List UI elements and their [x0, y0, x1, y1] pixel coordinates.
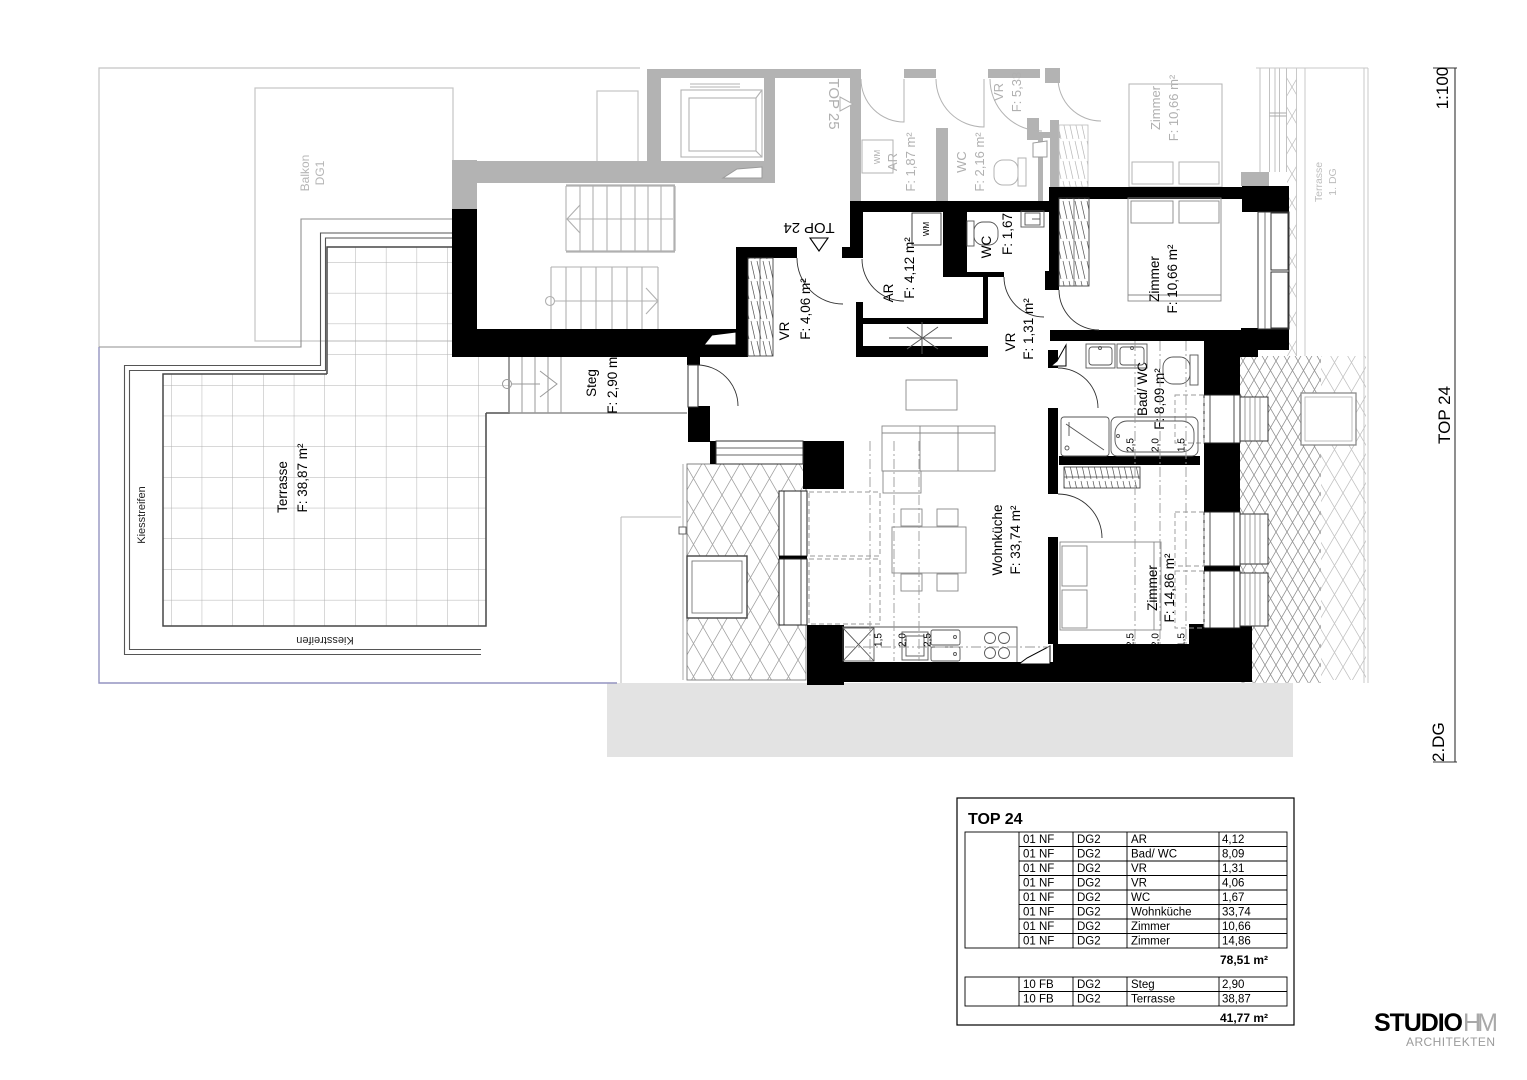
svg-text:F: 2,16 m²: F: 2,16 m² — [972, 132, 987, 192]
svg-text:F: 33,74 m²: F: 33,74 m² — [1008, 505, 1023, 575]
svg-text:AR: AR — [1131, 834, 1147, 846]
svg-text:10 FB: 10 FB — [1023, 979, 1054, 991]
svg-text:1,31: 1,31 — [1222, 863, 1244, 875]
svg-text:Zimmer: Zimmer — [1145, 565, 1160, 611]
svg-text:WC: WC — [1131, 892, 1150, 904]
svg-text:F: 8,09 m²: F: 8,09 m² — [1152, 368, 1167, 430]
svg-text:Zimmer: Zimmer — [1148, 85, 1163, 130]
svg-text:VR: VR — [777, 321, 792, 340]
svg-text:F: 2,90 m²: F: 2,90 m² — [605, 352, 620, 414]
svg-text:01 NF: 01 NF — [1023, 936, 1054, 948]
svg-text:38,87: 38,87 — [1222, 994, 1251, 1006]
svg-text:AR: AR — [881, 283, 896, 302]
svg-text:TOP 24: TOP 24 — [968, 811, 1023, 828]
svg-text:DG2: DG2 — [1077, 994, 1101, 1006]
svg-text:WM: WM — [873, 150, 882, 165]
svg-text:DG1: DG1 — [313, 160, 327, 185]
svg-text:10,66: 10,66 — [1222, 921, 1251, 933]
svg-text:2,0: 2,0 — [898, 633, 909, 647]
svg-text:1,67: 1,67 — [1222, 892, 1244, 904]
svg-text:01 NF: 01 NF — [1023, 878, 1054, 890]
svg-text:F: 38,87 m²: F: 38,87 m² — [295, 443, 310, 513]
svg-text:VR: VR — [991, 83, 1006, 101]
svg-text:8,09: 8,09 — [1222, 849, 1244, 861]
svg-text:DG2: DG2 — [1077, 979, 1101, 991]
svg-text:Terrasse: Terrasse — [275, 461, 290, 513]
svg-text:Wohnküche: Wohnküche — [990, 504, 1005, 575]
svg-text:01 NF: 01 NF — [1023, 907, 1054, 919]
svg-text:4,06: 4,06 — [1222, 878, 1244, 890]
svg-text:33,74: 33,74 — [1222, 907, 1251, 919]
svg-text:TOP 25: TOP 25 — [825, 78, 842, 129]
svg-text:DG2: DG2 — [1077, 921, 1101, 933]
svg-text:F: 1,67: F: 1,67 — [1000, 213, 1015, 255]
svg-text:2,90: 2,90 — [1222, 979, 1244, 991]
svg-text:41,77 m²: 41,77 m² — [1220, 1011, 1268, 1025]
svg-text:Balkon: Balkon — [298, 155, 312, 192]
svg-text:Zimmer: Zimmer — [1131, 921, 1170, 933]
svg-text:1,5: 1,5 — [1177, 438, 1188, 452]
svg-text:TOP 24: TOP 24 — [783, 219, 834, 236]
svg-text:DG2: DG2 — [1077, 849, 1101, 861]
svg-text:2,0: 2,0 — [1151, 633, 1162, 647]
svg-text:F: 10,66 m²: F: 10,66 m² — [1166, 74, 1181, 141]
svg-text:1. DG: 1. DG — [1327, 168, 1339, 195]
svg-text:TOP 24: TOP 24 — [1435, 386, 1454, 444]
svg-text:DG2: DG2 — [1077, 892, 1101, 904]
svg-text:Zimmer: Zimmer — [1147, 256, 1162, 302]
svg-text:01 NF: 01 NF — [1023, 892, 1054, 904]
svg-text:4,12: 4,12 — [1222, 834, 1244, 846]
svg-text:1,5: 1,5 — [1177, 633, 1188, 647]
svg-text:01 NF: 01 NF — [1023, 921, 1054, 933]
svg-text:Steg: Steg — [584, 369, 599, 397]
svg-text:Wohnküche: Wohnküche — [1131, 907, 1192, 919]
svg-text:WM: WM — [922, 222, 931, 237]
svg-text:DG2: DG2 — [1077, 834, 1101, 846]
svg-text:STUDIO: STUDIO — [1374, 1009, 1463, 1037]
svg-text:Steg: Steg — [1131, 979, 1155, 991]
svg-text:F: 5,33: F: 5,33 — [1009, 72, 1024, 112]
svg-text:78,51 m²: 78,51 m² — [1220, 953, 1268, 967]
svg-text:WC: WC — [954, 151, 969, 173]
svg-text:01 NF: 01 NF — [1023, 863, 1054, 875]
svg-text:Zimmer: Zimmer — [1131, 936, 1170, 948]
svg-text:HM: HM — [1463, 1009, 1497, 1037]
svg-text:VR: VR — [1131, 878, 1147, 890]
svg-text:DG2: DG2 — [1077, 863, 1101, 875]
svg-text:10 FB: 10 FB — [1023, 994, 1054, 1006]
svg-text:2,0: 2,0 — [1151, 438, 1162, 452]
svg-text:F: 4,12 m²: F: 4,12 m² — [902, 237, 917, 299]
svg-text:VR: VR — [1131, 863, 1147, 875]
svg-text:2.DG: 2.DG — [1429, 722, 1448, 762]
svg-text:F: 10,66 m²: F: 10,66 m² — [1165, 244, 1180, 314]
svg-text:Kiesstreifen: Kiesstreifen — [136, 486, 148, 543]
svg-text:DG2: DG2 — [1077, 878, 1101, 890]
svg-text:1,5: 1,5 — [874, 633, 885, 647]
svg-text:01 NF: 01 NF — [1023, 849, 1054, 861]
svg-text:1:100: 1:100 — [1433, 67, 1452, 110]
svg-text:Terrasse: Terrasse — [1131, 994, 1175, 1006]
svg-text:F: 14,86 m²: F: 14,86 m² — [1162, 553, 1177, 623]
svg-text:2,5: 2,5 — [1126, 438, 1137, 452]
svg-text:Bad/ WC: Bad/ WC — [1135, 362, 1150, 416]
svg-text:14,86: 14,86 — [1222, 936, 1251, 948]
svg-text:ARCHITEKTEN: ARCHITEKTEN — [1406, 1035, 1497, 1049]
svg-text:WC: WC — [979, 236, 994, 259]
svg-text:Kiesstreifen: Kiesstreifen — [296, 634, 353, 646]
svg-text:Bad/ WC: Bad/ WC — [1131, 849, 1177, 861]
svg-text:F: 1,31 m²: F: 1,31 m² — [1021, 298, 1036, 360]
svg-text:2,5: 2,5 — [1126, 633, 1137, 647]
svg-text:VR: VR — [1003, 332, 1018, 351]
svg-text:01 NF: 01 NF — [1023, 834, 1054, 846]
svg-text:F: 1,87 m²: F: 1,87 m² — [903, 132, 918, 192]
svg-text:2,5: 2,5 — [923, 633, 934, 647]
svg-text:F: 4,06 m²: F: 4,06 m² — [798, 278, 813, 340]
svg-text:DG2: DG2 — [1077, 936, 1101, 948]
svg-text:Terrasse: Terrasse — [1313, 162, 1325, 202]
svg-text:DG2: DG2 — [1077, 907, 1101, 919]
